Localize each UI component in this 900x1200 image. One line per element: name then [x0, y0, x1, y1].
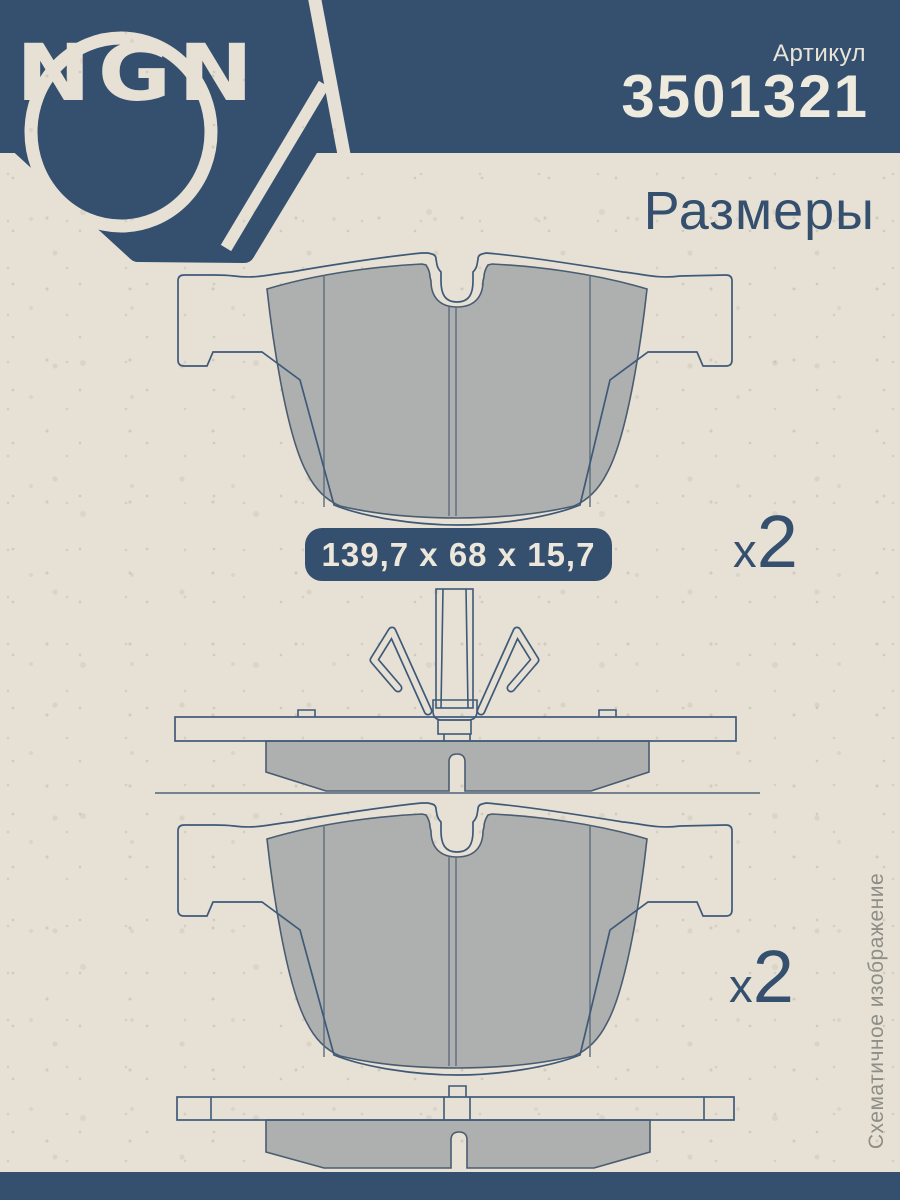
quantity-prefix: x	[729, 960, 753, 1013]
footer-band	[0, 1172, 900, 1200]
plate-tab-left	[298, 710, 315, 717]
page-title: Размеры	[644, 180, 875, 242]
dimensions-badge: 139,7 x 68 x 15,7	[305, 528, 612, 581]
brake-pad-side-view-1	[170, 700, 740, 805]
clip-spring-arm-left	[374, 631, 428, 711]
dimensions-text: 139,7 x 68 x 15,7	[322, 536, 596, 574]
brake-pad-back-view-2	[170, 795, 740, 1085]
quantity-label-top: x2	[733, 505, 798, 579]
friction-material-side	[266, 741, 649, 791]
friction-material-side	[266, 1120, 650, 1168]
backing-plate-side	[175, 717, 736, 741]
backing-plate-side	[177, 1097, 734, 1120]
plate-tab-center	[449, 1086, 466, 1097]
plate-tab-right	[599, 710, 616, 717]
quantity-value: 2	[753, 935, 794, 1018]
clip-spring-arm-right	[481, 631, 535, 711]
brake-pad-side-view-2	[170, 1080, 740, 1180]
product-card: NGN Артикул 3501321 Размеры 139,7 x 68 x…	[0, 0, 900, 1200]
section-divider	[155, 792, 760, 794]
article-number: 3501321	[621, 62, 869, 131]
schematic-note: Схематичное изображение	[865, 851, 889, 1171]
brake-pad-back-view-1	[170, 245, 740, 535]
quantity-label-bottom: x2	[729, 940, 794, 1014]
clip-post-inner-right	[466, 589, 468, 708]
clip-post-inner-left	[441, 589, 443, 708]
quantity-prefix: x	[733, 525, 757, 578]
quantity-value: 2	[757, 500, 798, 583]
